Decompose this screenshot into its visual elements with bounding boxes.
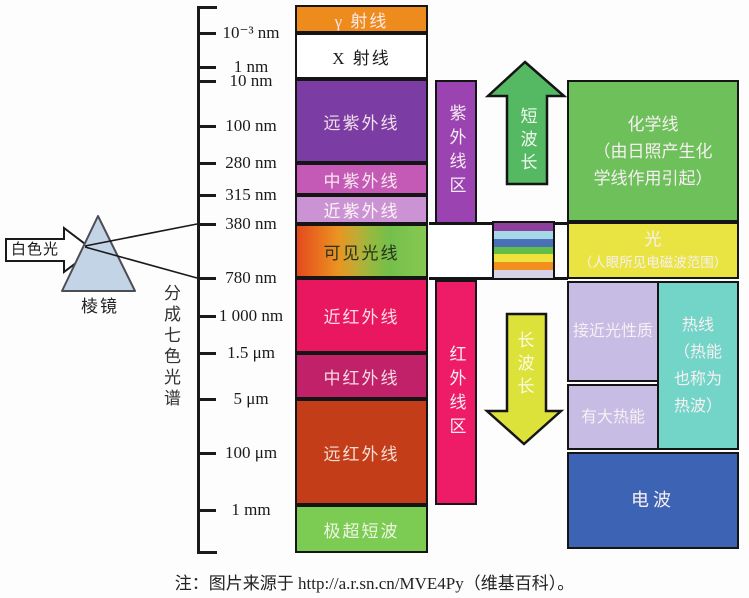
axis-line (197, 6, 200, 554)
spectrum-band: γ 射线 (295, 5, 428, 33)
ir-region-label: 红外线区 (444, 345, 469, 441)
axis-tick-label: 380 nm (213, 213, 289, 235)
spectrum-band: 可见光线 (295, 224, 428, 278)
rainbow-stripe (494, 231, 553, 239)
chemical-rays-desc-line1: （由日照产生化 (594, 138, 713, 165)
spectrum-band: 极超短波 (295, 505, 428, 553)
rainbow-stripe (494, 247, 553, 255)
ir-region-bar: 红外线区 (435, 280, 477, 505)
rainbow-stripe (494, 262, 553, 270)
heat-ray-desc-line2: 也称为 (674, 366, 722, 393)
axis-tick-label: 1.5 μm (213, 342, 289, 364)
axis-bottom-cap (197, 551, 217, 554)
dispersion-line-lower (85, 247, 197, 278)
spectrum-band: X 射线 (295, 33, 428, 79)
spectrum-column: γ 射线X 射线远紫外线中紫外线近紫外线可见光线近红外线中红外线远红外线极超短波 (295, 0, 428, 598)
source-note: 注：图片来源于 http://a.r.sn.cn/MVE4Py（维基百科）。 (0, 569, 749, 594)
white-light-label: 白色光 (7, 239, 63, 261)
axis-tick-label: 1 mm (213, 499, 289, 521)
chemical-rays-box: 化学线 （由日照产生化 学线作用引起） (567, 80, 739, 222)
rainbow-strip (492, 221, 555, 280)
axis-tick-label: 780 nm (213, 267, 289, 289)
uv-region-bar: 紫外线区 (435, 80, 477, 224)
prism-label: 棱镜 (72, 292, 128, 317)
chemical-rays-desc-line2: 学线作用引起） (594, 165, 713, 192)
great-heat-energy-label: 有大热能 (581, 404, 645, 431)
spectrum-band: 近红外线 (295, 278, 428, 353)
short-wavelength-label: 短波长 (505, 98, 549, 184)
heat-ray-title: 热线 (682, 312, 714, 339)
near-light-property-label: 接近光性质 (573, 318, 653, 345)
radio-waves-label: 电波 (631, 487, 675, 514)
light-box: 光 （人眼所见电磁波范围） (567, 222, 739, 279)
axis-tick-label: 10 nm (213, 70, 289, 92)
heat-ray-desc-line1: （热能 (674, 339, 722, 366)
radio-waves-box: 电波 (567, 452, 739, 549)
long-wavelength-label: 长波长 (502, 320, 546, 410)
rainbow-stripe (494, 254, 553, 262)
great-heat-energy-box: 有大热能 (567, 384, 659, 450)
rainbow-stripe (494, 239, 553, 247)
uv-region-label: 紫外线区 (444, 104, 469, 200)
spectrum-band: 中紫外线 (295, 163, 428, 195)
heat-ray-box: 热线 （热能 也称为 热波） (657, 281, 739, 450)
axis-tick-label: 5 μm (213, 388, 289, 410)
axis-tick-label: 100 nm (213, 115, 289, 137)
spectrum-band: 近紫外线 (295, 195, 428, 224)
axis-tick-label: 280 nm (213, 152, 289, 174)
axis-top-cap (197, 6, 217, 9)
em-spectrum-diagram: 白色光 棱镜 分成七色光谱 10⁻³ nm1 nm10 nm100 nm280 … (0, 0, 749, 598)
chemical-rays-title: 化学线 (628, 111, 679, 138)
axis-tick-label: 10⁻³ nm (213, 22, 289, 44)
heat-ray-desc-line3: 热波） (674, 393, 722, 420)
spectrum-band: 中红外线 (295, 353, 428, 399)
prism-triangle (62, 216, 135, 291)
axis-tick-label: 1 000 nm (213, 305, 289, 327)
axis-tick-label: 100 μm (213, 442, 289, 464)
rainbow-stripe (494, 270, 553, 278)
split-into-seven-colors-label: 分成七色光谱 (158, 284, 183, 410)
dispersion-line-upper (85, 224, 197, 246)
axis-tick-label: 315 nm (213, 184, 289, 206)
rainbow-stripe (494, 223, 553, 231)
light-desc: （人眼所见电磁波范围） (579, 251, 728, 274)
spectrum-band: 远红外线 (295, 399, 428, 505)
spectrum-band: 远紫外线 (295, 79, 428, 163)
near-light-property-box: 接近光性质 (567, 281, 659, 382)
light-title: 光 (645, 228, 662, 251)
